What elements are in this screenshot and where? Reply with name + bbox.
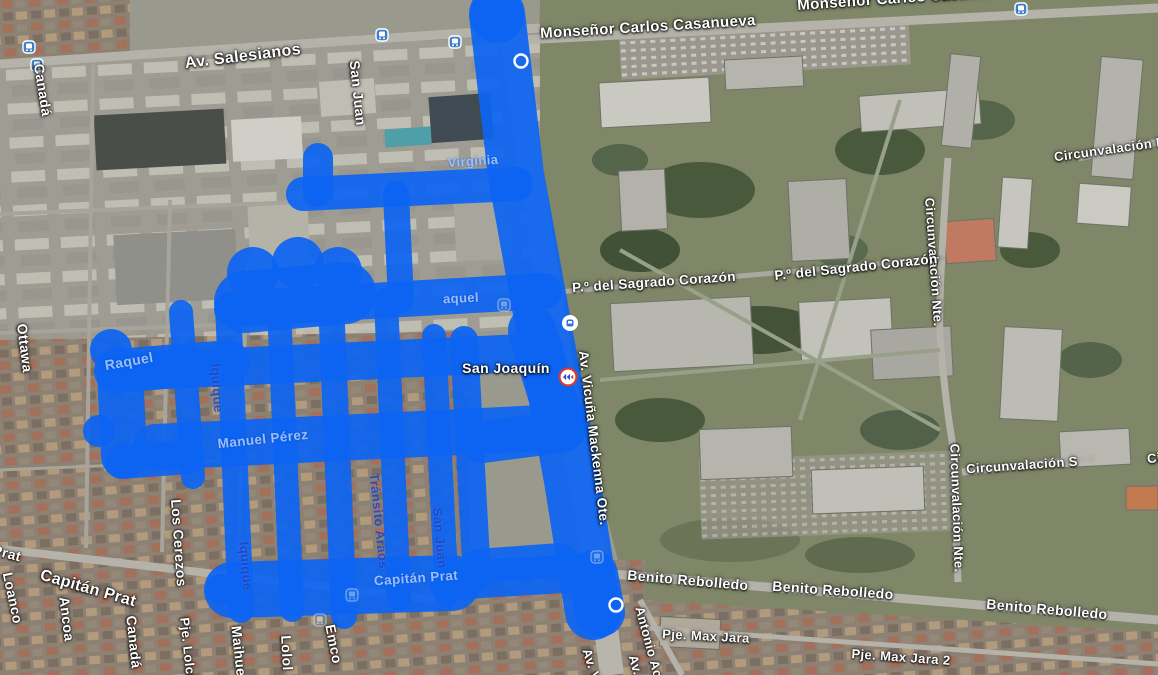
street-label: Virginia [447, 152, 499, 170]
street-label: P.º del Sagrado Corazón [774, 251, 939, 283]
street-label: Circunvalación Nte. [947, 443, 966, 572]
street-label: Pje. Lolco [177, 617, 199, 675]
street-label: aquel [443, 290, 480, 307]
street-label: Benito Rebolledo [772, 578, 894, 602]
street-label: Emco [322, 623, 345, 665]
station-label[interactable]: San Joaquín [462, 360, 550, 376]
street-label: Loanco [0, 571, 26, 625]
street-label: Ottawa [14, 323, 36, 374]
street-label: Benito Rebolledo [986, 596, 1108, 623]
street-label: Circunvalación S [966, 454, 1079, 477]
street-label: Ancoa [56, 596, 77, 642]
street-label: Maihue [228, 625, 249, 675]
street-labels-layer: Av. SalesianosCanadáSan JuanMonseñor Car… [0, 0, 1158, 675]
street-label: Iquique [208, 363, 226, 413]
street-label: Pje. Max Jara [662, 626, 750, 646]
street-label: Pje. Max Jara 2 [851, 646, 951, 668]
street-label: Prat [0, 542, 23, 565]
street-label: Canadá [31, 63, 55, 118]
street-label: Los Cerezos [168, 499, 190, 588]
street-label: Av. Salesianos [184, 41, 302, 73]
street-label: San Juan [430, 507, 450, 569]
street-label: Capitán Prat [38, 567, 138, 612]
street-label: Circunvalación [1146, 438, 1158, 467]
map-canvas[interactable]: Av. SalesianosCanadáSan JuanMonseñor Car… [0, 0, 1158, 675]
street-label: Circunvalación Nte. [1053, 132, 1158, 165]
street-label: San Juan [347, 60, 370, 127]
street-label: Lolol [278, 635, 296, 671]
street-label: Benito Rebolledo [627, 567, 749, 594]
street-label: Manuel Pérez [217, 427, 309, 451]
street-label: Raquel [103, 349, 154, 373]
street-label: Iquique [236, 541, 255, 591]
street-label: P.º del Sagrado Corazón [572, 269, 737, 295]
street-label: Canadá [123, 615, 144, 669]
street-label: Av. Vicuña Mackenna Ote. [576, 350, 612, 526]
street-label: Tránsito Araos [367, 472, 392, 569]
street-label: Monseñor Carlos Casanueva [540, 12, 757, 42]
street-label: Monseñor Carlos Casanueva [797, 0, 1014, 14]
street-label: Capitán Prat [373, 568, 458, 589]
